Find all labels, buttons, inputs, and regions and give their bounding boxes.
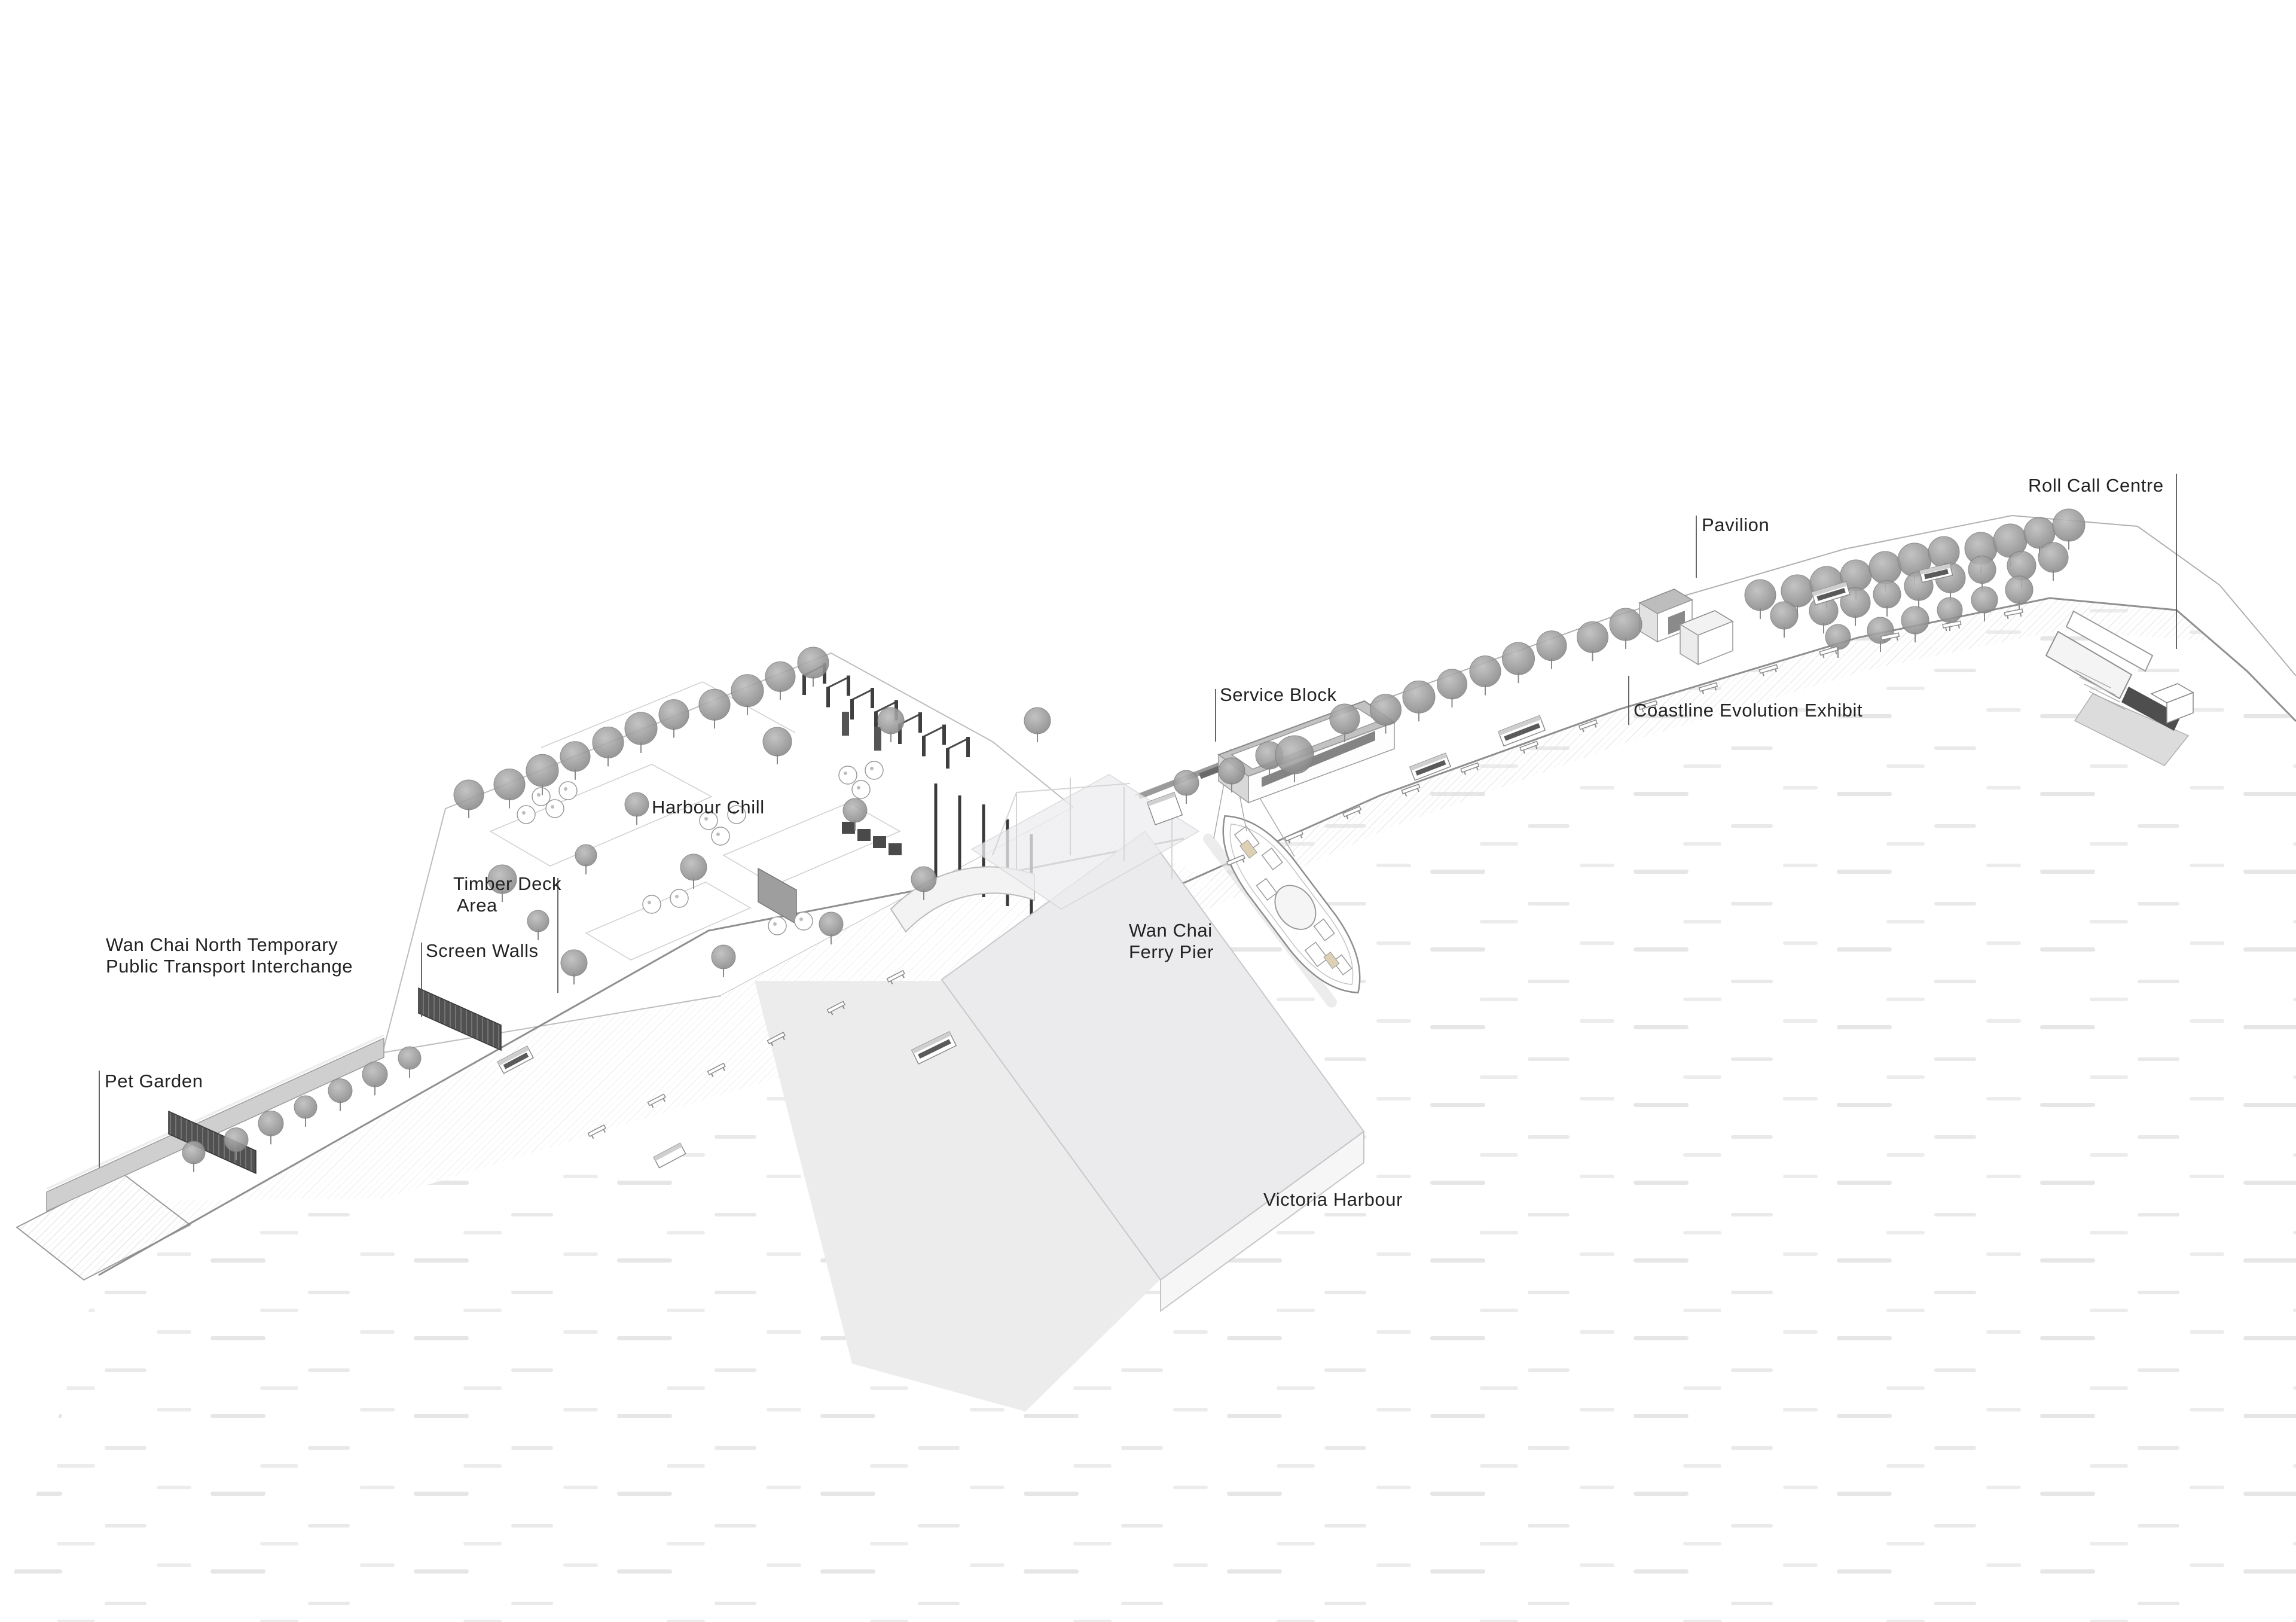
tree-icon	[526, 754, 558, 786]
pergola-post	[850, 699, 854, 719]
tree-icon	[878, 708, 904, 734]
round-table	[865, 761, 883, 779]
label-service-block: Service Block	[1220, 684, 1337, 706]
round-table	[559, 782, 577, 800]
tree-icon	[561, 950, 587, 976]
label-timber-deck-line1: Timber Deck	[453, 873, 561, 895]
tree-icon	[843, 798, 867, 822]
label-roll-call-centre: Roll Call Centre	[2028, 475, 2164, 496]
label-transport-interchange: Wan Chai North Temporary Public Transpor…	[106, 934, 353, 977]
site-plan-drawing	[0, 0, 2296, 1622]
table-detail	[857, 786, 860, 789]
table-detail	[870, 767, 874, 770]
table-detail	[675, 895, 679, 898]
label-pet-garden: Pet Garden	[105, 1071, 203, 1092]
tree-icon	[911, 867, 936, 892]
tree-icon	[1370, 694, 1402, 725]
label-harbour-chill: Harbour Chill	[652, 797, 765, 818]
pergola-post	[802, 675, 806, 695]
tree-icon	[819, 912, 843, 936]
tree-icon	[2005, 576, 2033, 603]
tree-icon	[1825, 624, 1851, 650]
tree-icon	[560, 742, 590, 772]
tree-icon	[1219, 758, 1245, 784]
tree-icon	[1937, 597, 1962, 623]
label-victoria-harbour: Victoria Harbour	[1263, 1189, 1403, 1211]
table-detail	[844, 772, 847, 775]
table-detail	[564, 787, 567, 791]
tree-icon	[1577, 621, 1608, 653]
label-timber-deck-area: Timber Deck Area	[453, 873, 561, 916]
tree-icon	[1867, 617, 1894, 644]
tree-icon	[454, 780, 484, 810]
tree-icon	[1275, 736, 1314, 774]
tree-icon	[1610, 608, 1642, 641]
tree-icon	[328, 1079, 352, 1103]
round-table	[643, 895, 661, 913]
round-table	[517, 806, 535, 824]
signage-totem	[842, 712, 849, 736]
tree-icon	[1873, 581, 1901, 608]
tree-icon	[362, 1062, 387, 1087]
tree-icon	[398, 1047, 421, 1069]
label-screen-walls: Screen Walls	[426, 940, 539, 962]
tree-icon	[1971, 587, 1998, 613]
tree-icon	[798, 647, 829, 678]
tree-icon	[2007, 551, 2036, 580]
tree-icon	[1770, 602, 1798, 629]
table-detail	[648, 901, 651, 904]
pergola-post	[942, 725, 946, 745]
tree-icon	[1928, 536, 1959, 568]
tree-icon	[1745, 580, 1776, 611]
pergola-post	[826, 687, 830, 708]
tree-icon	[763, 727, 792, 756]
tree-icon	[2053, 509, 2085, 541]
tree-icon	[593, 727, 624, 758]
pergola-post	[871, 688, 874, 708]
tree-icon	[294, 1096, 317, 1118]
pergola-post	[946, 748, 949, 769]
label-ferry-pier-line1: Wan Chai	[1129, 920, 1214, 941]
tree-icon	[625, 712, 657, 745]
bench-leg	[1884, 639, 1885, 643]
signage-totem	[874, 727, 881, 751]
tree-icon	[182, 1141, 205, 1164]
bench-leg	[2007, 615, 2008, 619]
tree-icon	[1174, 770, 1199, 795]
pergola-post	[918, 712, 922, 733]
bench-leg	[1946, 627, 1946, 631]
label-pavilion: Pavilion	[1702, 514, 1769, 536]
table-detail	[799, 917, 803, 921]
table-detail	[773, 922, 777, 926]
bench-leg	[2020, 613, 2021, 617]
label-ferry-pier-line2: Ferry Pier	[1129, 941, 1214, 963]
label-wan-chai-ferry-pier: Wan Chai Ferry Pier	[1129, 920, 1214, 963]
table-detail	[551, 805, 554, 809]
tree-icon	[1503, 642, 1535, 675]
tree-icon	[1901, 606, 1929, 634]
round-table	[795, 912, 813, 930]
tree-icon	[1869, 551, 1901, 584]
tree-icon	[1968, 556, 1996, 584]
round-table	[546, 800, 564, 818]
tree-icon	[680, 854, 707, 880]
tree-icon	[1024, 708, 1051, 734]
label-transport-interchange-line2: Public Transport Interchange	[106, 956, 353, 977]
tree-icon	[1330, 704, 1360, 734]
round-table	[839, 766, 857, 784]
bench-leg	[1897, 637, 1897, 641]
label-timber-deck-line2: Area	[453, 895, 561, 916]
label-transport-interchange-line1: Wan Chai North Temporary	[106, 934, 353, 956]
tree-icon	[1470, 656, 1501, 687]
table-detail	[537, 793, 541, 797]
tree-icon	[712, 945, 735, 969]
pergola-post	[966, 737, 970, 757]
round-table	[712, 827, 729, 845]
table-detail	[522, 811, 526, 815]
tree-icon	[625, 792, 649, 816]
label-coastline-evolution-exhibit: Coastline Evolution Exhibit	[1634, 700, 1863, 721]
tree-icon	[224, 1128, 248, 1152]
pergola-post	[922, 736, 926, 757]
tree-icon	[2038, 542, 2068, 572]
bench-leg	[1959, 625, 1959, 629]
round-table	[670, 889, 688, 907]
round-table	[852, 780, 870, 798]
tree-icon	[1537, 631, 1567, 661]
tree-icon	[659, 700, 689, 730]
pergola-post	[847, 676, 850, 696]
tree-icon	[258, 1111, 283, 1136]
tree-icon	[765, 661, 795, 691]
tree-icon	[494, 769, 525, 800]
tree-icon	[699, 689, 730, 720]
tree-icon	[1403, 681, 1435, 713]
tree-icon	[1437, 669, 1467, 699]
tree-icon	[731, 675, 764, 707]
table-detail	[716, 833, 720, 836]
tree-icon	[575, 844, 597, 866]
round-table	[768, 917, 786, 935]
